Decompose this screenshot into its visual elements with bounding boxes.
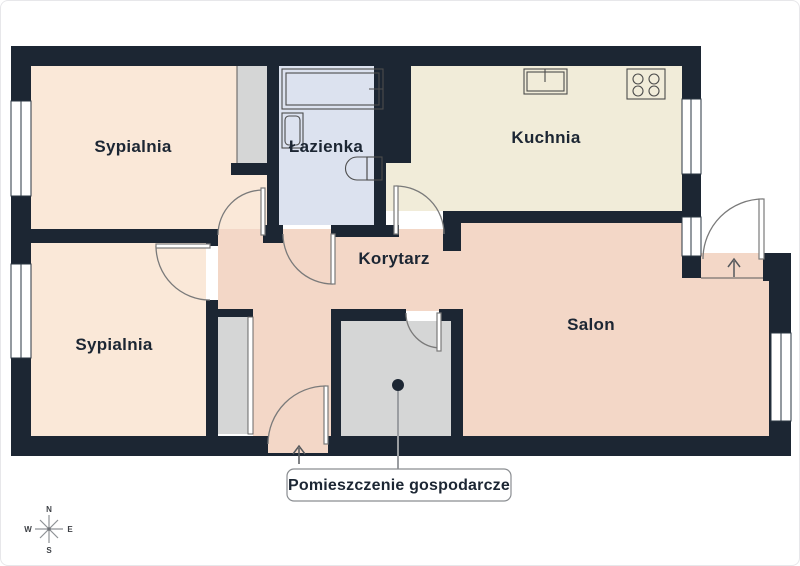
wall-utility-west <box>331 309 341 456</box>
floor-plan-drawing: Pomieszczenie gospodarcze N S E W Sypial… <box>1 1 800 566</box>
room-corridor-label: Korytarz <box>358 249 429 268</box>
wall-utility-north-west <box>331 309 406 321</box>
wall-bedrooms-divider <box>11 229 218 243</box>
callout-label: Pomieszczenie gospodarcze <box>288 477 510 494</box>
wall-bathroom-west <box>267 46 279 241</box>
south-doorway-opening <box>268 436 328 453</box>
floor-plan-canvas: Pomieszczenie gospodarcze N S E W Sypial… <box>0 0 800 566</box>
compass-e: E <box>67 525 73 534</box>
window-living-east <box>771 333 791 421</box>
room-corridor-floor <box>218 229 461 311</box>
wall-kitchen-west <box>386 46 411 163</box>
wall-kitchen-south <box>443 211 682 223</box>
room-bedroom-bottom-label: Sypialnia <box>75 335 153 354</box>
window-bedroom-top-west <box>11 101 31 196</box>
utility-room-dot <box>392 379 404 391</box>
wall-entry-jamb <box>763 253 791 281</box>
window-corridor-east <box>682 217 701 256</box>
wall-bedroom-bottom-east <box>206 300 218 456</box>
room-bedroom-top-label: Sypialnia <box>94 137 172 156</box>
room-kitchen-label: Kuchnia <box>511 128 580 147</box>
closet-bedroom-top <box>237 66 267 163</box>
wall-kitchen-east-2 <box>682 174 701 217</box>
compass-s: S <box>46 546 52 555</box>
wall-bathroom-east <box>374 46 386 237</box>
compass-rose: N S E W <box>24 505 73 555</box>
wall-closet-corridor-top <box>211 309 253 317</box>
window-kitchen-east <box>682 99 701 174</box>
room-corridor-south-floor <box>253 311 331 454</box>
compass-n: N <box>46 505 52 514</box>
window-bedroom-bottom-west <box>11 264 31 358</box>
room-living-floor-east <box>682 278 769 436</box>
compass-w: W <box>24 525 32 534</box>
wall-kitchen-east-3 <box>682 256 701 278</box>
entry-alcove-floor <box>701 253 763 278</box>
closet-sliding-door <box>248 317 253 434</box>
compass-center <box>47 527 51 531</box>
room-utility-floor <box>341 321 451 436</box>
wall-north <box>11 46 701 66</box>
room-living-label: Salon <box>567 315 615 334</box>
wall-south <box>11 436 791 456</box>
wall-utility-east <box>451 309 463 456</box>
wall-kitchen-east-1 <box>682 46 701 99</box>
wall-pillar <box>443 211 461 251</box>
room-bathroom-label: Łazienka <box>289 137 363 156</box>
wall-closet-bottom <box>231 163 279 175</box>
